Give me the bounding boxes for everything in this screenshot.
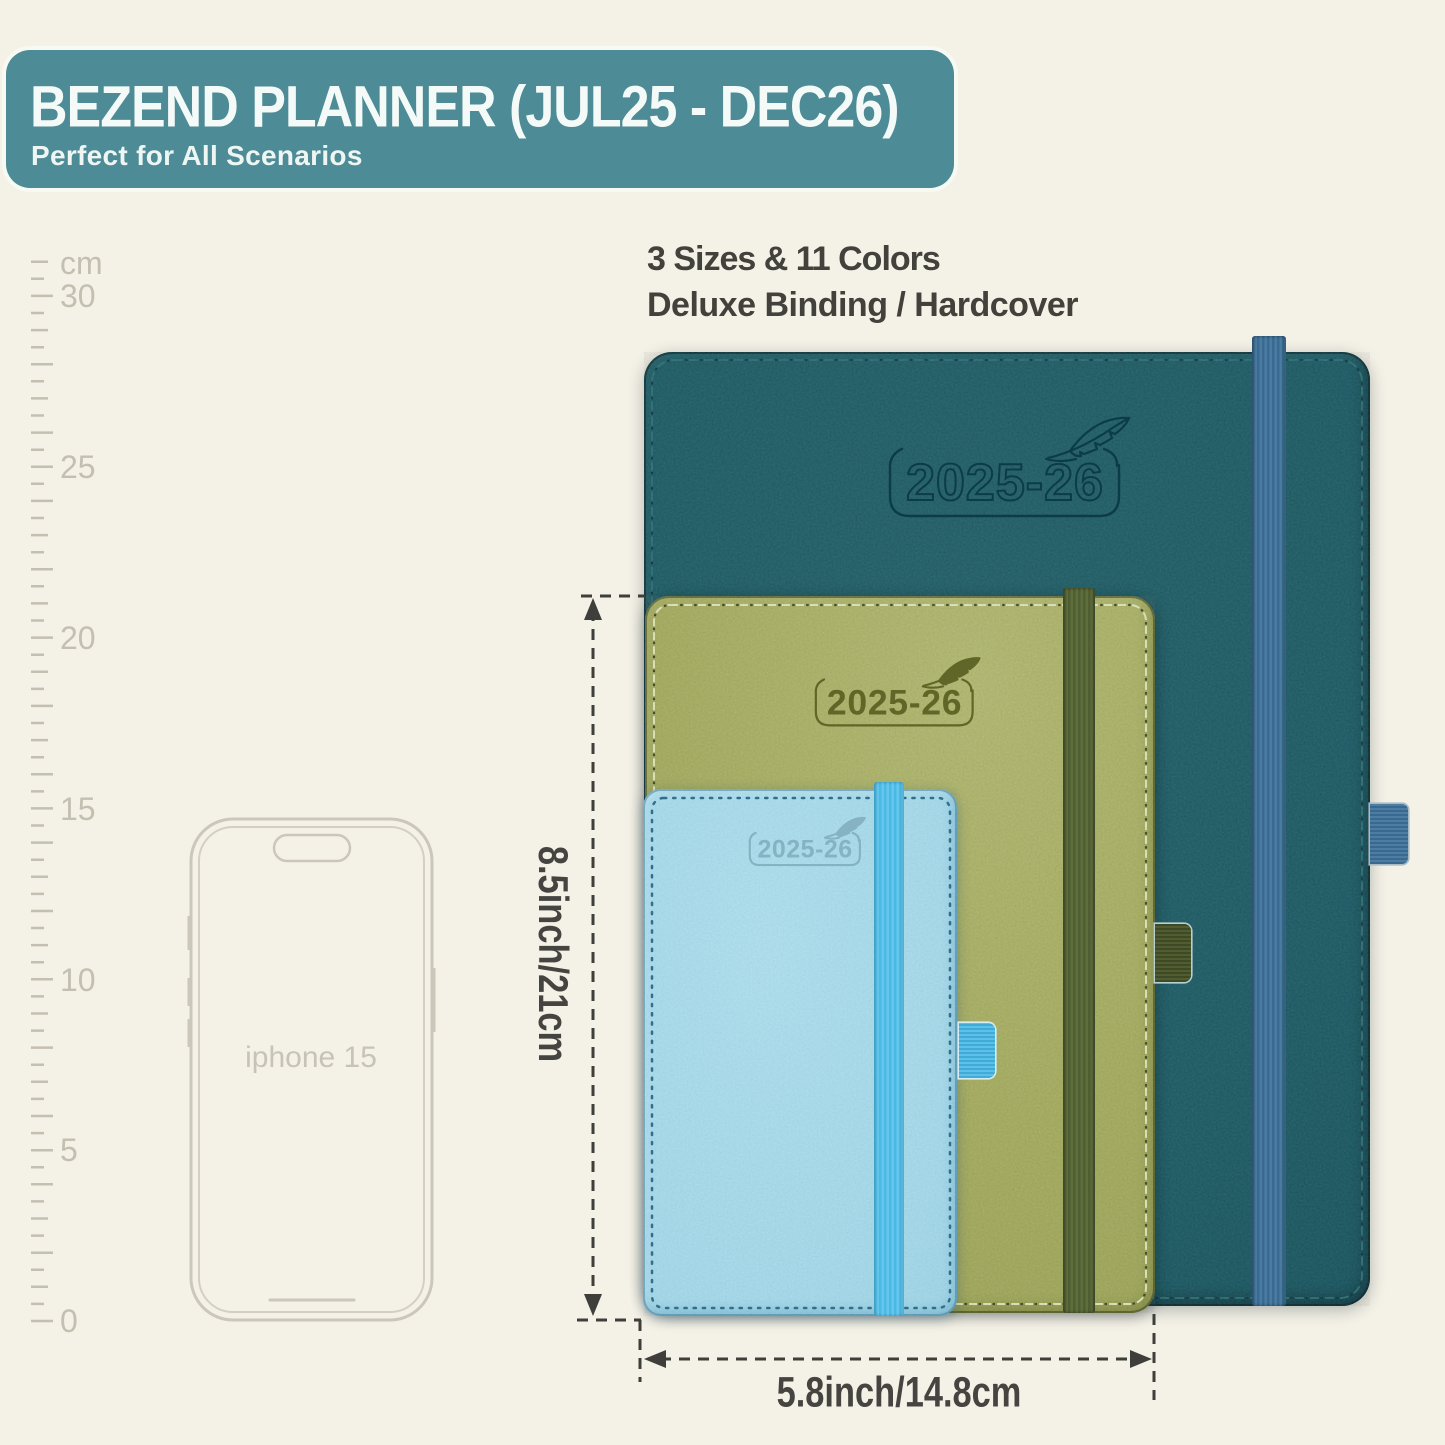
svg-text:iphone 15: iphone 15 (245, 1041, 377, 1074)
svg-text:2025-26: 2025-26 (906, 454, 1104, 512)
svg-text:30: 30 (60, 278, 96, 314)
svg-text:15: 15 (60, 791, 96, 827)
svg-text:5: 5 (60, 1132, 78, 1168)
svg-text:cm: cm (60, 245, 103, 281)
svg-text:10: 10 (60, 962, 96, 998)
svg-text:0: 0 (60, 1303, 78, 1339)
svg-text:25: 25 (60, 449, 96, 485)
svg-text:20: 20 (60, 620, 96, 656)
svg-text:2025-26: 2025-26 (758, 835, 853, 863)
svg-text:2025-26: 2025-26 (827, 682, 962, 722)
